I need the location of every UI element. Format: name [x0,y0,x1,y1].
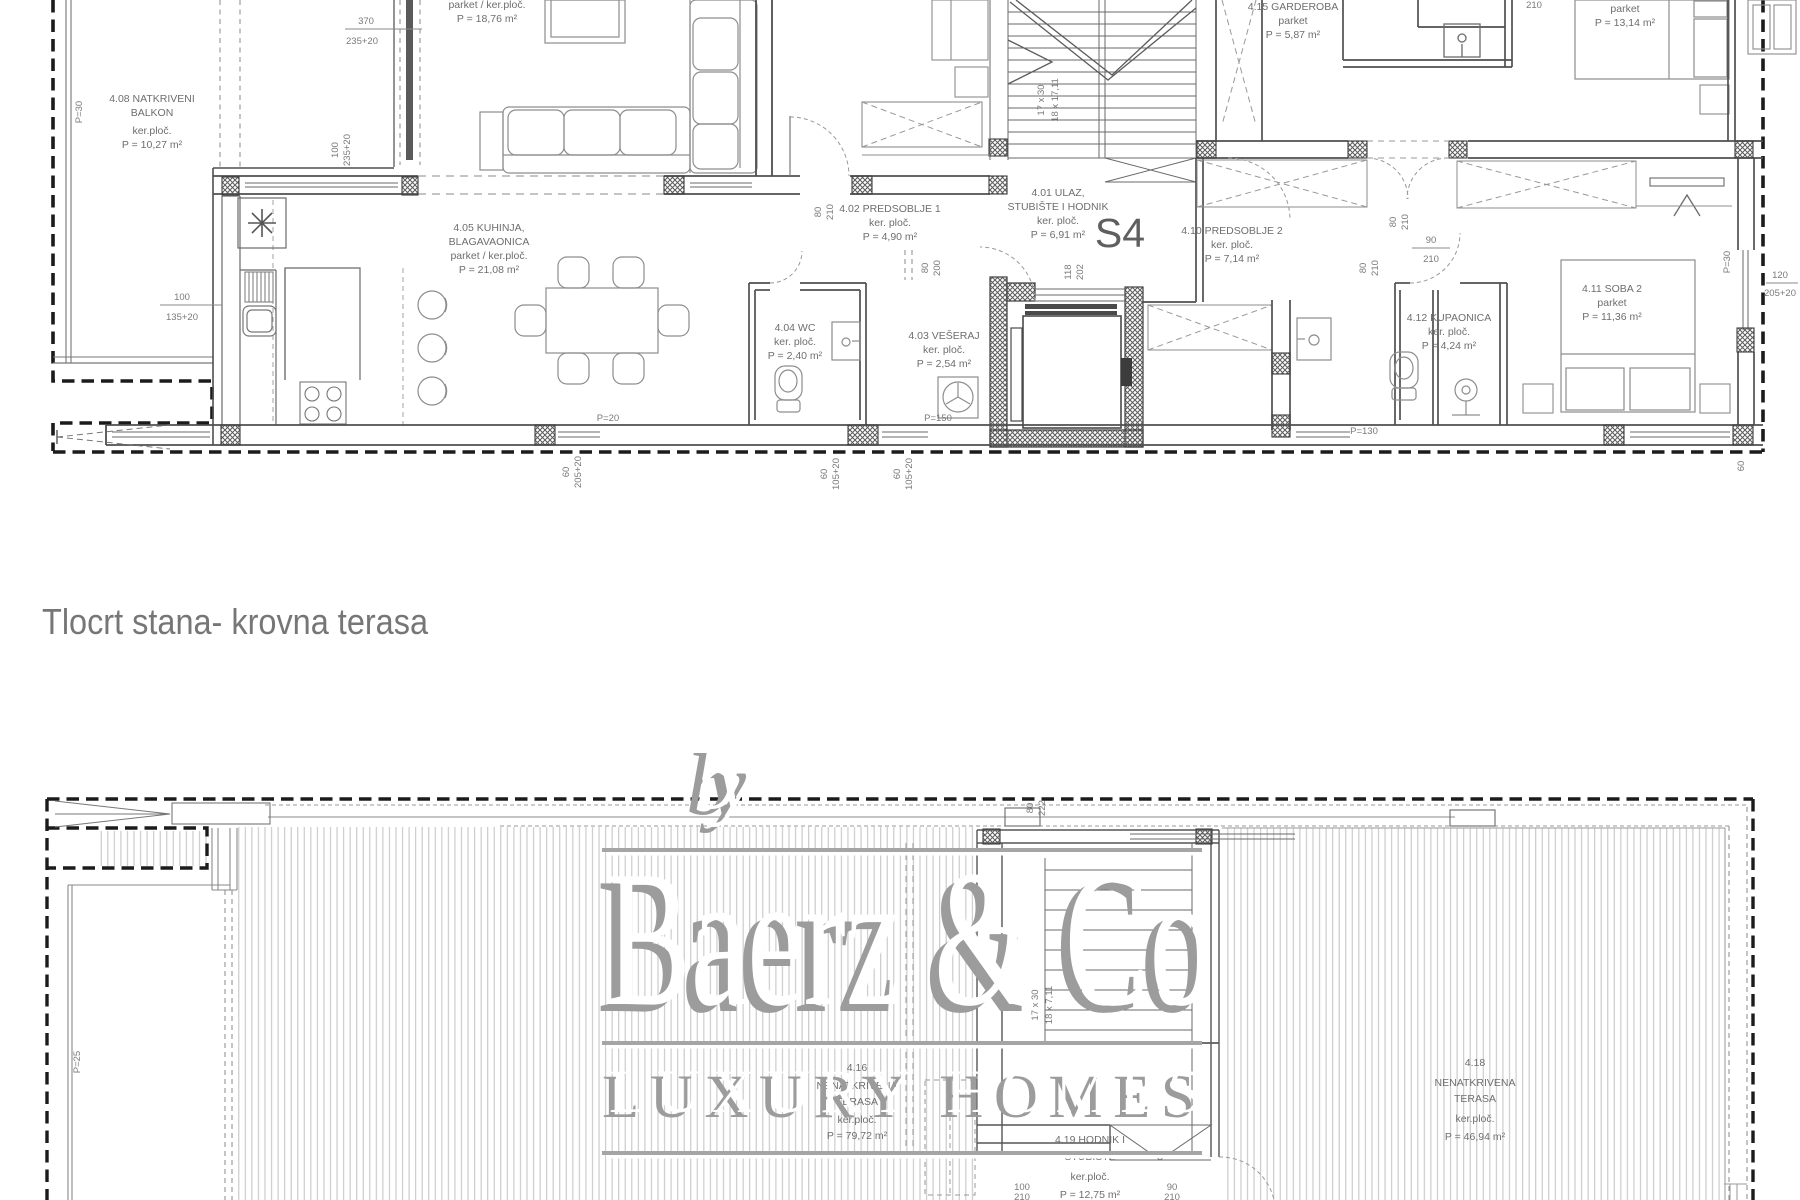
svg-text:P = 18,76 m²: P = 18,76 m² [457,13,518,25]
svg-text:60: 60 [1736,461,1747,472]
svg-text:P = 6,91 m²: P = 6,91 m² [1031,229,1086,241]
svg-text:P = 79,72 m²: P = 79,72 m² [827,1130,888,1142]
svg-text:LUXURY HOMES: LUXURY HOMES [609,1059,1212,1126]
svg-text:P = 2,54 m²: P = 2,54 m² [917,358,972,370]
svg-text:210: 210 [1423,254,1439,265]
svg-text:P = 12,75 m²: P = 12,75 m² [1060,1189,1121,1200]
svg-text:80: 80 [1388,217,1399,228]
svg-text:4.18: 4.18 [1465,1057,1486,1069]
svg-text:P = 5,87 m²: P = 5,87 m² [1266,29,1321,41]
svg-text:205+20: 205+20 [1764,288,1796,299]
svg-text:222: 222 [1037,800,1048,816]
svg-text:120: 120 [1772,270,1788,281]
svg-text:NENATKRIVENA: NENATKRIVENA [1435,1077,1516,1089]
svg-text:P = 10,27 m²: P = 10,27 m² [122,139,183,151]
svg-text:210: 210 [1014,1192,1030,1200]
svg-text:210: 210 [1526,0,1542,11]
svg-text:4.03 VEŠERAJ: 4.03 VEŠERAJ [908,329,979,342]
svg-text:60: 60 [819,469,830,480]
svg-text:80: 80 [813,207,824,218]
svg-text:P = 13,14 m²: P = 13,14 m² [1595,17,1656,29]
svg-text:210: 210 [1400,214,1411,230]
svg-text:4.19 HODNIK I: 4.19 HODNIK I [1055,1134,1125,1146]
svg-text:BALKON: BALKON [131,107,174,119]
svg-text:235+20: 235+20 [346,36,378,47]
svg-text:P=150: P=150 [924,413,952,424]
svg-text:ker. ploč.: ker. ploč. [869,217,911,229]
svg-text:4.01 ULAZ,: 4.01 ULAZ, [1031,187,1084,199]
svg-text:ker. ploč.: ker. ploč. [1428,326,1470,338]
svg-text:235+20: 235+20 [342,134,353,166]
svg-text:105+20: 105+20 [831,458,842,490]
svg-text:4.08 NATKRIVENI: 4.08 NATKRIVENI [109,93,195,105]
svg-text:parket: parket [1278,15,1307,27]
svg-text:P = 4,90 m²: P = 4,90 m² [863,231,918,243]
svg-text:P = 4,24 m²: P = 4,24 m² [1422,340,1477,352]
svg-text:100: 100 [330,142,341,158]
svg-text:105+20: 105+20 [904,458,915,490]
svg-text:P=130: P=130 [1350,426,1378,437]
svg-text:118: 118 [1063,264,1074,279]
svg-text:ker.ploč.: ker.ploč. [1070,1171,1109,1183]
svg-text:4.10 PREDSOBLJE 2: 4.10 PREDSOBLJE 2 [1181,225,1283,237]
svg-text:60: 60 [561,467,572,478]
svg-text:Tlocrt stana- krovna terasa: Tlocrt stana- krovna terasa [42,601,429,642]
svg-text:P = 2,40 m²: P = 2,40 m² [768,350,823,362]
svg-text:BLAGAVAONICA: BLAGAVAONICA [449,236,530,248]
svg-text:80: 80 [920,263,931,274]
svg-text:17 x 30: 17 x 30 [1036,84,1047,115]
svg-text:parket: parket [1610,3,1639,15]
svg-text:202: 202 [1075,264,1086,280]
svg-text:135+20: 135+20 [166,312,198,323]
svg-text:P = 11,36 m²: P = 11,36 m² [1582,311,1642,323]
svg-text:parket / ker.ploč.: parket / ker.ploč. [448,0,525,11]
svg-text:60: 60 [892,469,903,480]
svg-text:4.11 SOBA 2: 4.11 SOBA 2 [1582,283,1642,295]
svg-text:4.04 WC: 4.04 WC [775,322,816,334]
svg-text:P=30: P=30 [74,101,85,123]
svg-text:210: 210 [1370,260,1381,276]
svg-text:ker.ploč.: ker.ploč. [1455,1113,1494,1125]
svg-text:80: 80 [1358,263,1369,274]
svg-text:ker. ploč.: ker. ploč. [1037,215,1079,227]
svg-text:P=25: P=25 [72,1051,83,1073]
svg-text:P = 21,08 m²: P = 21,08 m² [459,264,520,276]
svg-text:P = 46,94 m²: P = 46,94 m² [1445,1131,1506,1143]
svg-text:100: 100 [174,292,190,303]
svg-text:200: 200 [932,260,943,276]
svg-text:STUBIŠTE I HODNIK: STUBIŠTE I HODNIK [1008,200,1109,213]
svg-text:P=30: P=30 [1722,251,1733,273]
svg-text:P=20: P=20 [597,413,619,424]
svg-text:210: 210 [825,204,836,220]
svg-text:4.02 PREDSOBLJE 1: 4.02 PREDSOBLJE 1 [839,203,941,215]
svg-text:Baerz & Co: Baerz & Co [606,831,1213,1047]
svg-text:S4: S4 [1095,210,1145,256]
svg-text:parket / ker.ploč.: parket / ker.ploč. [450,250,527,262]
svg-text:80: 80 [1025,803,1036,814]
svg-text:ker. ploč.: ker. ploč. [774,336,816,348]
svg-text:by: by [695,731,756,828]
svg-text:parket: parket [1597,297,1626,309]
svg-text:ker.ploč.: ker.ploč. [132,125,171,137]
svg-text:205+20: 205+20 [573,456,584,488]
svg-text:4.12 KUPAONICA: 4.12 KUPAONICA [1407,312,1491,324]
svg-text:370: 370 [358,16,374,27]
svg-text:90: 90 [1426,235,1437,246]
svg-text:4.05 KUHINJA,: 4.05 KUHINJA, [453,222,524,234]
svg-text:TERASA: TERASA [1454,1093,1496,1105]
svg-text:210: 210 [1164,1192,1180,1200]
svg-text:4.15 GARDEROBA: 4.15 GARDEROBA [1248,1,1338,13]
svg-text:ker. ploč.: ker. ploč. [1211,239,1253,251]
svg-text:18 x 17,11: 18 x 17,11 [1050,78,1061,122]
svg-text:P = 7,14 m²: P = 7,14 m² [1205,253,1260,265]
svg-text:ker. ploč.: ker. ploč. [923,344,965,356]
